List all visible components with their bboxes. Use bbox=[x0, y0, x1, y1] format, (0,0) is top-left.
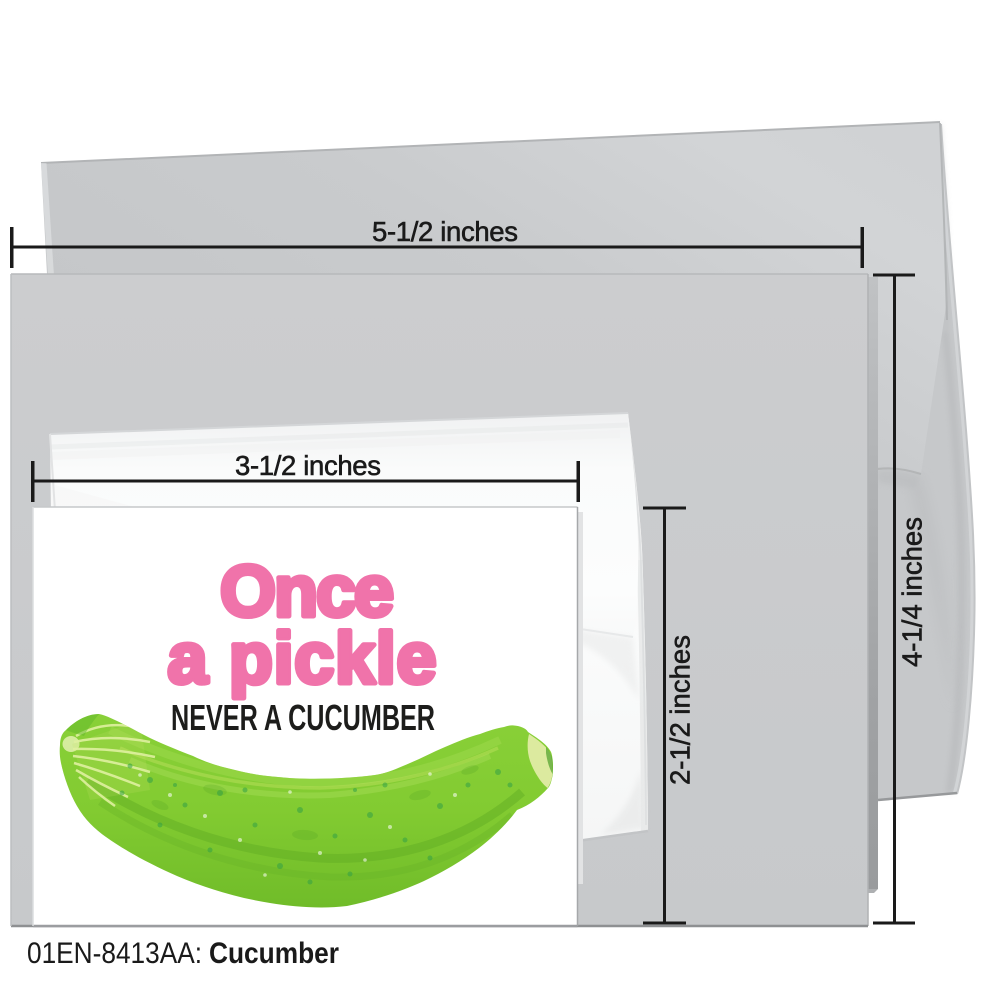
svg-text:01EN-8413AA:Cucumber: 01EN-8413AA:Cucumber bbox=[27, 937, 339, 970]
svg-text:a pickle: a pickle bbox=[168, 619, 437, 699]
svg-text:5-1/2 inches: 5-1/2 inches bbox=[372, 216, 518, 247]
svg-text:2-1/2 inches: 2-1/2 inches bbox=[665, 635, 696, 785]
svg-text:4-1/4 inches: 4-1/4 inches bbox=[897, 517, 928, 667]
svg-text:NEVER A CUCUMBER: NEVER A CUCUMBER bbox=[171, 697, 435, 738]
svg-text:3-1/2 inches: 3-1/2 inches bbox=[235, 450, 381, 481]
